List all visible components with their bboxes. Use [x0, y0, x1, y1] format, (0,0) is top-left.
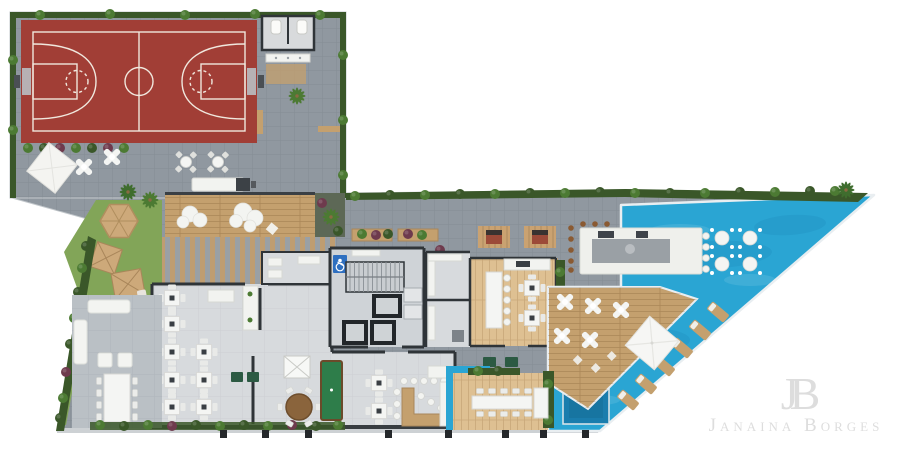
shaft [404, 305, 422, 319]
bar-appliance [636, 231, 648, 238]
support-kitchen [426, 252, 470, 347]
bench [257, 110, 263, 134]
armchair [98, 353, 112, 367]
cabinet [428, 366, 448, 378]
lap-pool-channel [446, 366, 453, 430]
deck-planter [315, 193, 345, 237]
building-core [330, 248, 424, 347]
backboard-pad [247, 68, 256, 95]
basketball-court [14, 20, 264, 143]
lounge-pouf [231, 372, 243, 382]
toilet-icon [297, 20, 307, 34]
cooktop [516, 261, 530, 267]
lounge-deck [165, 192, 345, 237]
hoop-post [14, 75, 20, 88]
armchair [118, 353, 132, 367]
backboard-pad [22, 68, 31, 95]
skylight-hatch [284, 356, 310, 378]
lounge-pouf [483, 357, 496, 367]
appliance [452, 330, 464, 342]
kitchen-island [486, 272, 502, 328]
support-rooms [262, 252, 332, 284]
bench [352, 250, 380, 256]
lounge-pouf [505, 357, 518, 367]
food-cart [192, 178, 256, 191]
lounge-pouf [247, 372, 259, 382]
swim-up-bar [568, 221, 709, 274]
toilet-icon [271, 20, 281, 34]
watermark: JB Janaina Borges [696, 374, 896, 437]
bench [318, 126, 340, 132]
floor-plan-render: JB Janaina Borges [0, 0, 900, 450]
jb-monogram: JB [696, 374, 896, 413]
hedge [10, 12, 16, 198]
hoop-post [258, 75, 264, 88]
brand-name: Janaina Borges [696, 415, 896, 437]
accessible-parking-badge [333, 255, 347, 273]
island-counter [534, 388, 548, 418]
pool-dining-terrace [446, 366, 554, 430]
bar-appliance [598, 231, 614, 238]
shaft [404, 288, 422, 302]
sofa [74, 320, 87, 364]
staircase [346, 262, 404, 292]
outdoor-lounge-terrace [72, 295, 162, 428]
sofa [88, 300, 130, 313]
bar-sink [625, 244, 635, 254]
buffet-counter [208, 290, 234, 302]
